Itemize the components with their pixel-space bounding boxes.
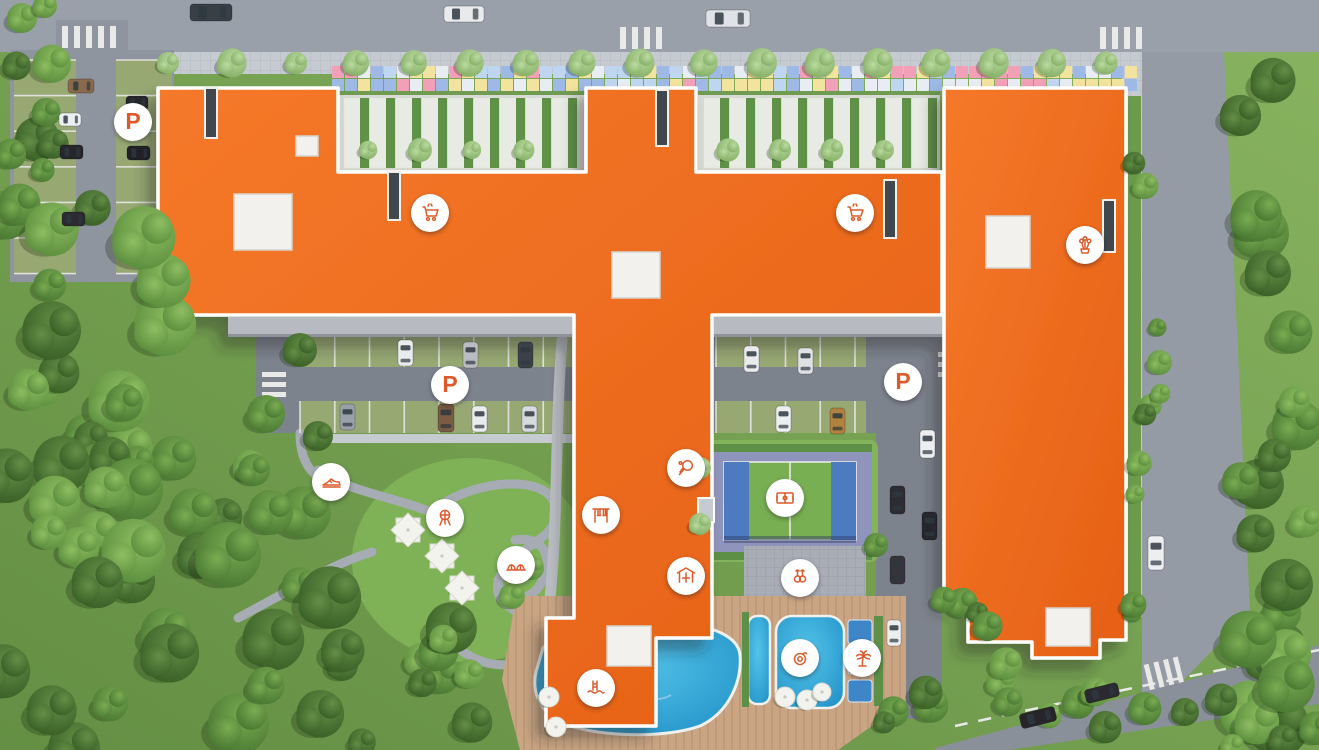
car — [887, 620, 901, 646]
car — [190, 4, 232, 21]
car — [744, 346, 759, 372]
marker-gazebo[interactable] — [667, 557, 705, 595]
car — [62, 212, 85, 226]
marker-swimming-pool[interactable] — [577, 669, 615, 707]
marker-flower-shop[interactable] — [1066, 226, 1104, 264]
pool-ladder-icon — [584, 676, 608, 700]
marker-parking[interactable]: P — [114, 103, 152, 141]
crosswalk-drive — [262, 372, 286, 397]
table-tennis-icon — [674, 456, 698, 480]
shopping-cart-icon — [843, 201, 867, 225]
parking-letter: P — [895, 370, 910, 393]
gazebo-icon — [674, 564, 698, 588]
parking-letter: P — [442, 373, 457, 396]
car — [1148, 536, 1164, 570]
building-roof-east — [944, 88, 1126, 658]
car — [59, 113, 81, 126]
sports-field-icon — [773, 486, 797, 510]
marker-palm-lounge[interactable] — [843, 639, 881, 677]
swim-ring-icon — [788, 646, 812, 670]
car — [776, 406, 791, 432]
marker-bbq-area[interactable] — [426, 499, 464, 537]
car — [472, 406, 487, 432]
car — [890, 556, 905, 584]
car — [798, 348, 813, 374]
car — [127, 146, 150, 160]
playground-icon — [504, 553, 528, 577]
marker-supermarket-east[interactable] — [836, 194, 874, 232]
car — [444, 6, 484, 22]
marker-supermarket-west[interactable] — [411, 194, 449, 232]
sneaker-icon — [319, 470, 343, 494]
car — [60, 145, 83, 159]
marker-jogging-track[interactable] — [312, 463, 350, 501]
car — [463, 342, 478, 368]
car — [920, 430, 935, 458]
marker-playground[interactable] — [497, 546, 535, 584]
shopping-cart-icon — [418, 201, 442, 225]
car — [518, 342, 533, 368]
car — [890, 486, 905, 514]
marker-outdoor-gym[interactable] — [781, 559, 819, 597]
marker-parking[interactable]: P — [431, 366, 469, 404]
car — [438, 404, 454, 432]
parking-letter: P — [125, 110, 140, 133]
car — [522, 406, 537, 432]
marker-swings[interactable] — [582, 496, 620, 534]
car — [830, 408, 845, 434]
flower-shop-icon — [1073, 233, 1097, 257]
car — [922, 512, 937, 540]
swings-icon — [589, 503, 613, 527]
gym-rings-icon — [788, 566, 812, 590]
terrain-render — [0, 0, 1319, 750]
lap-pool — [748, 616, 770, 704]
marker-parking[interactable]: P — [884, 363, 922, 401]
bbq-grill-icon — [433, 506, 457, 530]
marker-kids-pool[interactable] — [781, 639, 819, 677]
car — [706, 10, 750, 27]
site-plan-canvas: PPP — [0, 0, 1319, 750]
marker-table-tennis[interactable] — [667, 449, 705, 487]
central-strip-2 — [716, 335, 866, 367]
marker-sports-court[interactable] — [766, 479, 804, 517]
car — [68, 79, 94, 93]
palm-tree-icon — [850, 646, 874, 670]
car — [340, 404, 355, 430]
car — [398, 340, 413, 366]
central-sidewalk — [300, 434, 578, 443]
